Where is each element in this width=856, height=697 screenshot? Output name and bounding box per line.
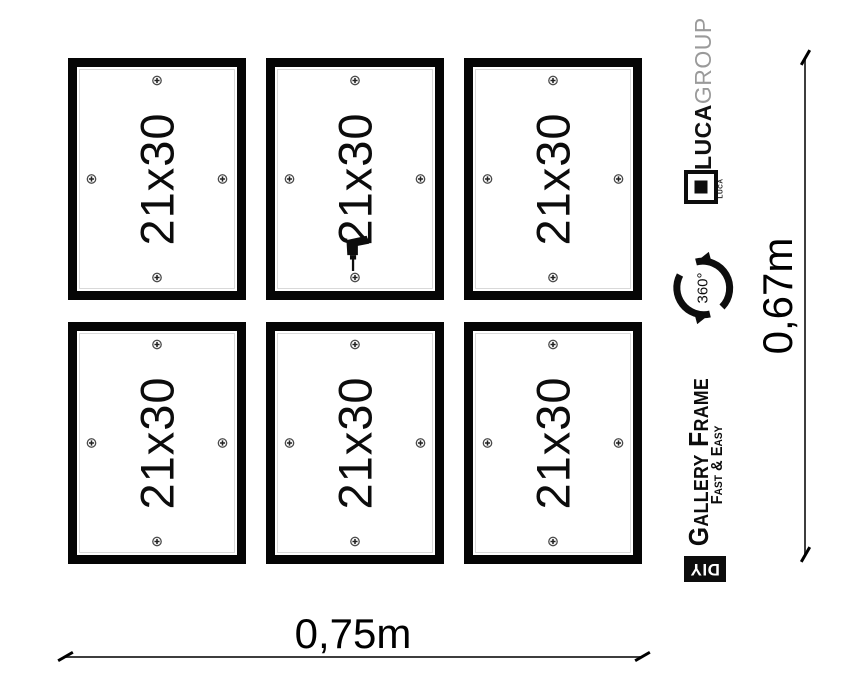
luca-logo-inner-square bbox=[695, 181, 708, 194]
luca-logo-small-text: LUCA bbox=[717, 169, 726, 209]
screw-icon bbox=[86, 438, 97, 449]
picture-frame: 21x30 bbox=[464, 322, 642, 564]
picture-frame: 21x30 bbox=[464, 58, 642, 300]
picture-frame: 21x30 bbox=[68, 58, 246, 300]
screw-icon bbox=[284, 174, 295, 185]
luca-group-wordmark-bold: LUCA bbox=[690, 104, 716, 170]
screw-icon bbox=[548, 339, 559, 350]
width-dimension-label: 0,75m bbox=[153, 610, 553, 658]
screw-icon bbox=[152, 75, 163, 86]
frame-size-label: 21x30 bbox=[328, 112, 383, 245]
screw-icon bbox=[548, 75, 559, 86]
screw-icon bbox=[350, 536, 361, 547]
height-dimension-label: 0,67m bbox=[756, 196, 800, 396]
screw-icon bbox=[350, 339, 361, 350]
frame-size-label: 21x30 bbox=[328, 376, 383, 509]
rotation-360-label: 360° bbox=[695, 272, 712, 303]
screw-icon bbox=[415, 174, 426, 185]
screw-icon bbox=[217, 438, 228, 449]
rotation-360-icon: 360° bbox=[667, 252, 739, 324]
screw-icon bbox=[482, 174, 493, 185]
frame-size-label: 21x30 bbox=[526, 376, 581, 509]
frame-size-label: 21x30 bbox=[526, 112, 581, 245]
frame-size-label: 21x30 bbox=[130, 376, 185, 509]
luca-logo-mark bbox=[684, 170, 718, 204]
luca-group-wordmark-light: GROUP bbox=[690, 17, 716, 104]
picture-frame: 21x30 bbox=[266, 322, 444, 564]
screw-icon bbox=[613, 438, 624, 449]
luca-group-wordmark: LUCAGROUP bbox=[690, 30, 716, 170]
screw-icon bbox=[152, 272, 163, 283]
screw-icon bbox=[217, 174, 228, 185]
screw-icon bbox=[86, 174, 97, 185]
diy-badge: DIY bbox=[684, 556, 726, 582]
height-dimension-line bbox=[804, 58, 806, 555]
screw-icon bbox=[152, 536, 163, 547]
screw-icon bbox=[284, 438, 295, 449]
dimension-tick bbox=[800, 546, 811, 562]
screw-icon bbox=[415, 438, 426, 449]
product-subtitle: Fast & Easy bbox=[709, 401, 727, 530]
picture-frame: 21x30 bbox=[68, 322, 246, 564]
screw-icon bbox=[548, 536, 559, 547]
frame-size-label: 21x30 bbox=[130, 112, 185, 245]
diy-badge-label: DIY bbox=[690, 561, 720, 578]
picture-frame: 21x30 bbox=[266, 58, 444, 300]
assembly-diagram: 21x30 21x30 21x30 bbox=[0, 0, 856, 697]
screw-icon bbox=[613, 174, 624, 185]
screw-icon bbox=[548, 272, 559, 283]
frames-grid: 21x30 21x30 21x30 bbox=[68, 58, 642, 564]
screw-icon bbox=[152, 339, 163, 350]
screw-icon bbox=[350, 75, 361, 86]
drill-icon bbox=[342, 234, 372, 278]
dimension-tick bbox=[634, 651, 650, 662]
screw-icon bbox=[482, 438, 493, 449]
